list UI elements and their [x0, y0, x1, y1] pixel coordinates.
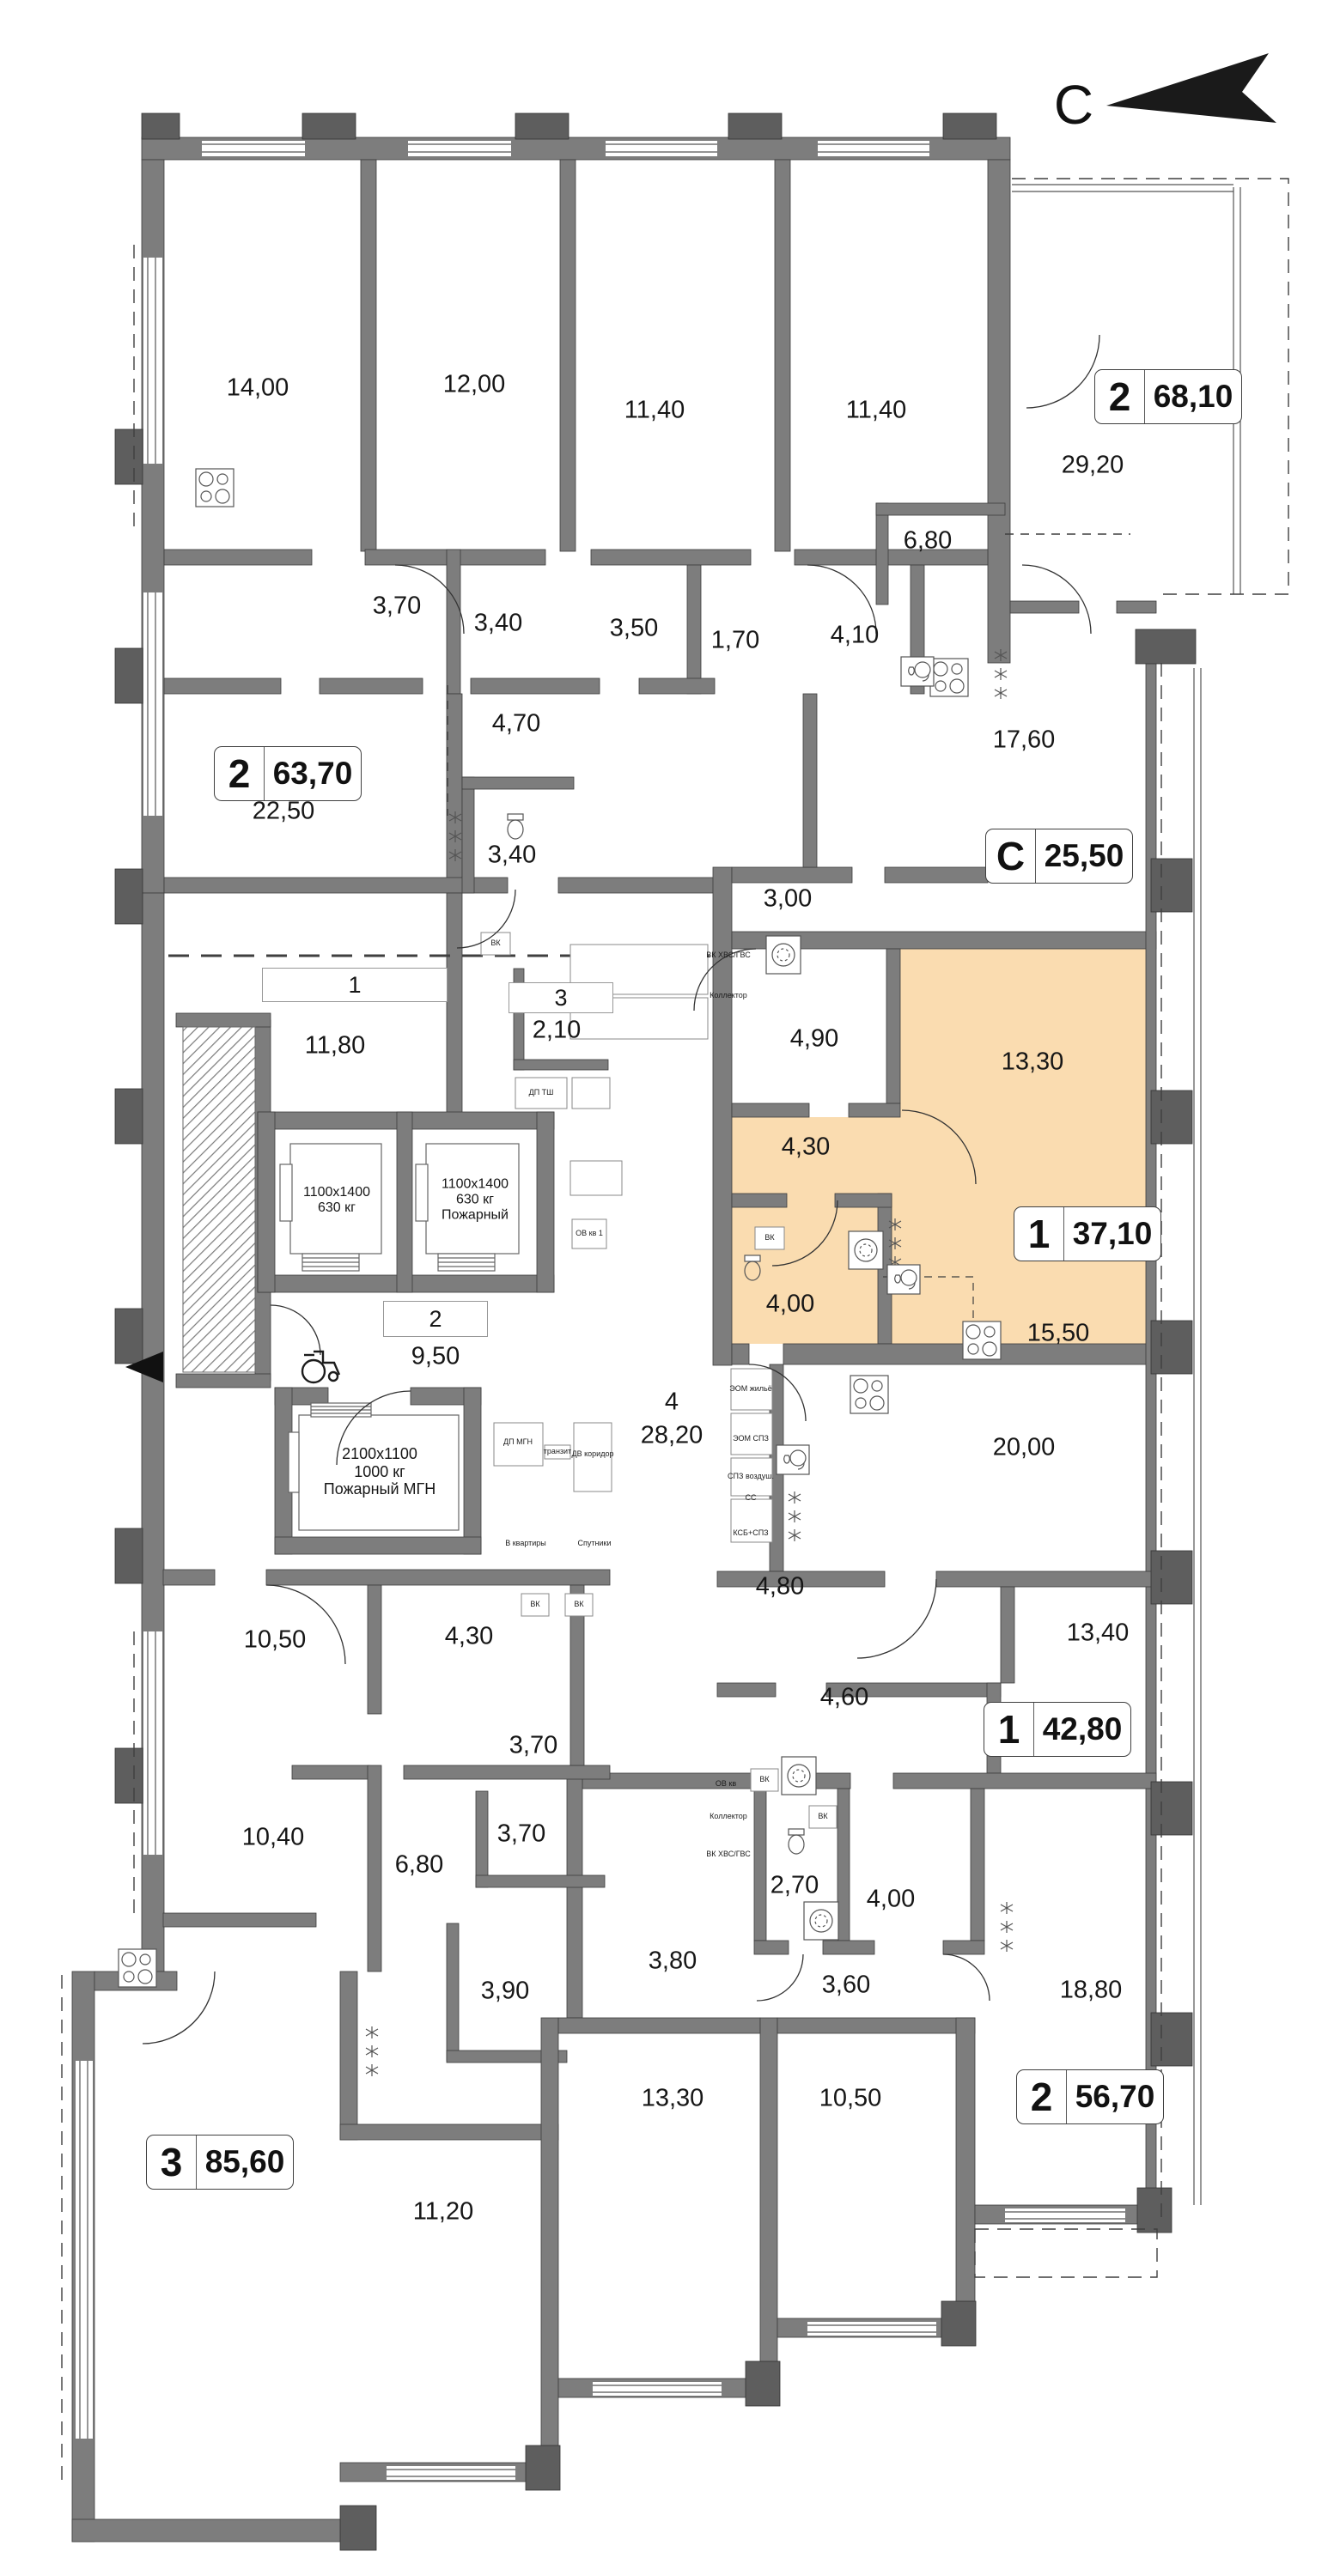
apartment-badge[interactable]: 2 63,70	[214, 746, 362, 801]
stove-icon	[119, 1949, 156, 1987]
apartment-number: С	[986, 829, 1036, 883]
apartment-number: 1	[984, 1703, 1034, 1756]
apartment-badge[interactable]: 1 42,80	[984, 1702, 1131, 1757]
apartment-area: 63,70	[265, 747, 361, 800]
sink-icon	[887, 1265, 920, 1294]
washing-machine-icon	[782, 1757, 816, 1795]
apartment-area: 37,10	[1064, 1207, 1160, 1261]
north-arrow-icon	[1106, 53, 1276, 123]
stove-icon	[930, 659, 968, 696]
apartment-area: 25,50	[1036, 829, 1132, 883]
floor-plan-stage: С 14,0012,0011,4011,4029,206,803,703,403…	[0, 0, 1340, 2576]
apartment-number: 2	[1017, 2070, 1067, 2123]
sink-icon	[777, 1445, 809, 1474]
toilet-icon	[789, 1829, 804, 1854]
apartment-badge[interactable]: С 25,50	[985, 829, 1133, 884]
sink-icon	[901, 657, 934, 686]
highlighted-apartment-region[interactable]	[732, 949, 1146, 1344]
apartment-badge[interactable]: 3 85,60	[146, 2135, 294, 2190]
apartment-number: 2	[215, 747, 265, 800]
toilet-icon	[508, 814, 523, 839]
washing-machine-icon	[804, 1902, 838, 1940]
stove-icon	[850, 1376, 888, 1413]
apartment-area: 85,60	[197, 2136, 293, 2189]
stove-icon	[196, 469, 234, 507]
apartment-badge[interactable]: 2 56,70	[1016, 2069, 1164, 2124]
radiator-icon	[1001, 1902, 1013, 1952]
north-label: С	[1054, 73, 1093, 137]
apartment-badge[interactable]: 2 68,10	[1094, 369, 1242, 424]
apartment-area: 56,70	[1067, 2070, 1163, 2123]
washing-machine-icon	[849, 1231, 883, 1269]
apartment-number: 2	[1095, 370, 1145, 423]
radiator-icon	[366, 2026, 378, 2076]
wheelchair-icon	[302, 1352, 339, 1382]
washing-machine-icon	[766, 936, 801, 974]
apartment-area: 42,80	[1034, 1703, 1130, 1756]
apartment-badge[interactable]: 1 37,10	[1014, 1206, 1161, 1261]
apartment-number: 3	[147, 2136, 197, 2189]
radiator-icon	[789, 1492, 801, 1541]
apartment-number: 1	[1014, 1207, 1064, 1261]
stove-icon	[963, 1321, 1001, 1359]
apartment-area: 68,10	[1145, 370, 1241, 423]
